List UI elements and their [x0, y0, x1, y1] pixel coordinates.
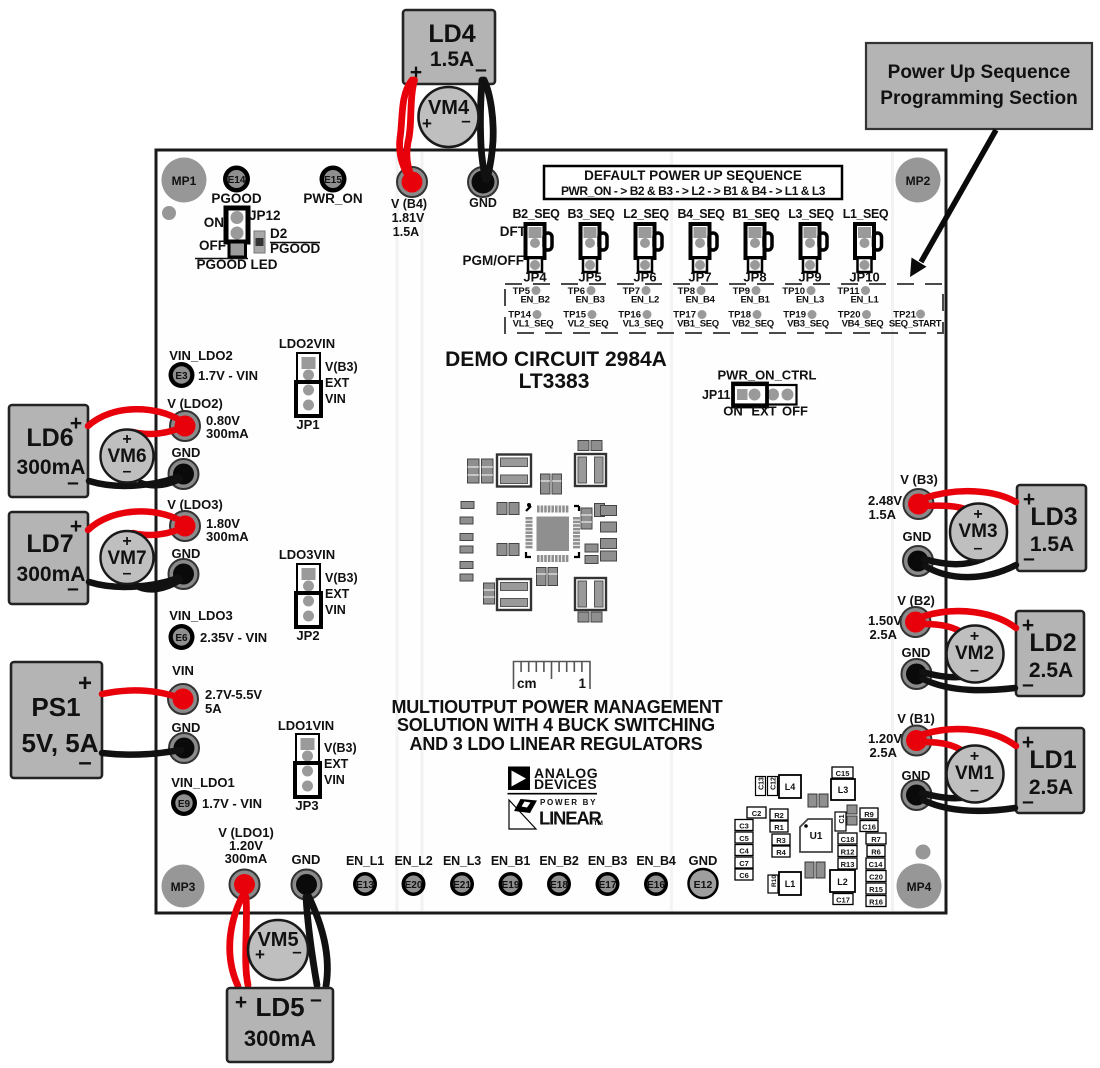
svg-text:JP7: JP7 — [688, 270, 711, 285]
svg-text:SEQ_START: SEQ_START — [889, 319, 942, 330]
svg-text:PS1: PS1 — [31, 692, 80, 722]
svg-text:MP4: MP4 — [907, 880, 932, 894]
svg-text:V(B3): V(B3) — [325, 360, 358, 374]
svg-text:GND: GND — [902, 645, 931, 660]
svg-text:JP3: JP3 — [295, 798, 318, 813]
svg-text:–: – — [461, 111, 470, 130]
svg-text:C13: C13 — [759, 777, 766, 790]
svg-text:DEMO CIRCUIT 2984A: DEMO CIRCUIT 2984A — [445, 348, 667, 371]
svg-text:1.5A: 1.5A — [430, 48, 474, 71]
svg-text:–: – — [78, 749, 91, 776]
svg-text:LINEAR: LINEAR — [539, 808, 602, 829]
svg-text:VM2: VM2 — [955, 643, 994, 664]
svg-text:JP12: JP12 — [249, 208, 281, 223]
svg-text:1.50V: 1.50V — [868, 613, 902, 628]
svg-text:OFF: OFF — [199, 238, 226, 253]
svg-text:VL2_SEQ: VL2_SEQ — [568, 319, 609, 330]
svg-text:1.5A: 1.5A — [869, 507, 897, 522]
svg-text:C2: C2 — [752, 809, 762, 818]
svg-text:+: + — [70, 412, 82, 435]
svg-text:–: – — [1022, 790, 1034, 813]
svg-text:GND: GND — [172, 445, 201, 460]
svg-text:R12: R12 — [841, 848, 855, 857]
svg-text:E3: E3 — [175, 371, 188, 382]
svg-text:Power Up Sequence: Power Up Sequence — [888, 62, 1071, 83]
svg-text:C3: C3 — [739, 822, 749, 831]
svg-text:R9: R9 — [864, 810, 874, 819]
svg-text:V(B3): V(B3) — [324, 741, 357, 755]
svg-text:VIN: VIN — [325, 392, 346, 406]
svg-text:R4: R4 — [776, 848, 786, 857]
svg-text:–: – — [292, 942, 301, 961]
svg-text:EN_B1: EN_B1 — [740, 295, 770, 306]
svg-text:L1: L1 — [785, 879, 796, 889]
svg-text:R6: R6 — [871, 848, 881, 857]
svg-text:EN_L1: EN_L1 — [850, 295, 879, 306]
svg-text:E21: E21 — [453, 880, 471, 891]
svg-text:LD3: LD3 — [1030, 503, 1077, 531]
svg-text:–: – — [970, 782, 979, 799]
svg-text:Programming Section: Programming Section — [880, 88, 1077, 109]
svg-text:L3_SEQ: L3_SEQ — [788, 207, 834, 221]
svg-text:E19: E19 — [502, 880, 520, 891]
svg-text:VM1: VM1 — [955, 763, 995, 784]
svg-text:JP9: JP9 — [798, 270, 821, 285]
svg-text:PWR_ON_CTRL: PWR_ON_CTRL — [718, 368, 817, 383]
svg-text:DFT: DFT — [500, 224, 527, 239]
svg-text:VB1_SEQ: VB1_SEQ — [677, 319, 719, 330]
svg-text:R7: R7 — [871, 835, 881, 844]
svg-text:EN_L1: EN_L1 — [346, 854, 384, 868]
svg-text:300mA: 300mA — [206, 426, 249, 441]
svg-text:R1: R1 — [774, 823, 784, 832]
svg-text:PWR_ON - > B2 & B3 - > L2 - >: PWR_ON - > B2 & B3 - > L2 - > B1 & B4 - … — [561, 184, 826, 198]
svg-text:E13: E13 — [356, 880, 374, 891]
svg-text:GND: GND — [469, 196, 497, 210]
svg-text:VIN_LDO2: VIN_LDO2 — [169, 348, 233, 363]
svg-text:1.7V - VIN: 1.7V - VIN — [198, 368, 258, 383]
svg-text:V(B3): V(B3) — [325, 571, 358, 585]
svg-text:V (B1): V (B1) — [897, 711, 935, 726]
svg-text:2.5A: 2.5A — [870, 627, 898, 642]
svg-text:R10: R10 — [771, 875, 778, 887]
svg-text:LDO2VIN: LDO2VIN — [279, 336, 335, 351]
svg-text:JP8: JP8 — [743, 270, 766, 285]
svg-text:–: – — [310, 988, 322, 1011]
svg-text:B3_SEQ: B3_SEQ — [568, 207, 616, 221]
svg-text:B1_SEQ: B1_SEQ — [733, 207, 781, 221]
svg-text:E14: E14 — [228, 175, 246, 186]
svg-text:L3: L3 — [838, 785, 849, 795]
svg-text:MP3: MP3 — [171, 880, 196, 894]
svg-text:B4_SEQ: B4_SEQ — [678, 207, 726, 221]
svg-text:GND: GND — [689, 853, 718, 868]
svg-text:OFF: OFF — [782, 404, 808, 419]
svg-text:GND: GND — [292, 852, 321, 867]
svg-text:EN_B2: EN_B2 — [539, 854, 579, 868]
svg-text:LD6: LD6 — [26, 424, 73, 452]
svg-text:C16: C16 — [862, 823, 876, 832]
svg-text:VIN: VIN — [325, 603, 346, 617]
svg-text:C7: C7 — [739, 859, 749, 868]
svg-text:SOLUTION WITH 4 BUCK SWITCHING: SOLUTION WITH 4 BUCK SWITCHING — [397, 715, 715, 735]
svg-text:C18: C18 — [841, 835, 855, 844]
svg-text:R16: R16 — [869, 898, 883, 907]
svg-text:1.81V: 1.81V — [392, 211, 425, 225]
svg-text:2.5A: 2.5A — [1029, 776, 1073, 799]
svg-text:V (B2): V (B2) — [897, 593, 935, 608]
svg-text:DEFAULT POWER UP SEQUENCE: DEFAULT POWER UP SEQUENCE — [584, 168, 802, 183]
svg-text:R13: R13 — [841, 860, 855, 869]
svg-text:VL3_SEQ: VL3_SEQ — [623, 319, 664, 330]
svg-text:B2_SEQ: B2_SEQ — [513, 207, 561, 221]
svg-text:R15: R15 — [869, 885, 883, 894]
svg-text:–: – — [123, 463, 132, 480]
svg-text:EN_B4: EN_B4 — [636, 854, 676, 868]
svg-text:EXT: EXT — [324, 757, 349, 771]
svg-text:–: – — [67, 471, 79, 494]
svg-text:L4: L4 — [785, 782, 796, 792]
svg-text:JP1: JP1 — [296, 417, 319, 432]
svg-text:V (LDO2): V (LDO2) — [167, 396, 223, 411]
svg-text:VIN_LDO3: VIN_LDO3 — [169, 608, 233, 623]
svg-text:PGOOD: PGOOD — [211, 191, 262, 206]
svg-text:2.5A: 2.5A — [870, 745, 898, 760]
svg-text:PWR_ON: PWR_ON — [303, 191, 362, 206]
svg-text:LD4: LD4 — [428, 20, 475, 48]
svg-text:R2: R2 — [774, 811, 784, 820]
svg-text:E12: E12 — [694, 879, 713, 891]
svg-text:EXT: EXT — [325, 587, 350, 601]
svg-text:LDO3VIN: LDO3VIN — [279, 547, 335, 562]
svg-text:DEVICES: DEVICES — [534, 776, 597, 792]
svg-text:L1_SEQ: L1_SEQ — [843, 207, 889, 221]
svg-text:MP2: MP2 — [906, 174, 931, 188]
svg-text:PGM/OFF: PGM/OFF — [463, 253, 525, 268]
svg-text:VL1_SEQ: VL1_SEQ — [513, 319, 554, 330]
svg-text:1: 1 — [578, 676, 586, 691]
svg-text:E20: E20 — [405, 880, 423, 891]
svg-text:VIN_LDO1: VIN_LDO1 — [171, 775, 235, 790]
svg-text:L2: L2 — [837, 877, 848, 887]
svg-text:1.7V - VIN: 1.7V - VIN — [202, 796, 262, 811]
svg-text:E6: E6 — [175, 633, 188, 644]
svg-text:TM: TM — [594, 820, 603, 827]
svg-text:2.7V-5.5V: 2.7V-5.5V — [205, 687, 262, 702]
svg-text:C20: C20 — [869, 873, 883, 882]
svg-text:C6: C6 — [739, 871, 749, 880]
svg-text:U1: U1 — [810, 831, 823, 842]
svg-text:–: – — [974, 540, 983, 557]
svg-text:300mA: 300mA — [244, 1026, 316, 1051]
svg-text:EN_B1: EN_B1 — [491, 854, 531, 868]
svg-text:LDO1VIN: LDO1VIN — [278, 718, 334, 733]
svg-text:LT3383: LT3383 — [519, 370, 590, 393]
svg-text:E18: E18 — [550, 880, 568, 891]
svg-text:V (B4): V (B4) — [391, 197, 427, 211]
svg-text:–: – — [970, 662, 979, 679]
svg-text:EN_B4: EN_B4 — [685, 295, 715, 306]
svg-text:C14: C14 — [869, 860, 884, 869]
svg-text:EXT: EXT — [751, 404, 776, 419]
svg-text:C4: C4 — [739, 847, 749, 856]
svg-text:JP6: JP6 — [633, 270, 656, 285]
svg-text:GND: GND — [903, 529, 932, 544]
svg-text:+: + — [422, 114, 432, 133]
svg-text:EXT: EXT — [325, 376, 350, 390]
svg-text:JP5: JP5 — [578, 270, 601, 285]
svg-text:LD5: LD5 — [255, 992, 304, 1022]
svg-text:cm: cm — [517, 676, 537, 691]
svg-text:2.48V: 2.48V — [868, 493, 902, 508]
svg-text:ON: ON — [723, 404, 743, 419]
svg-text:C15: C15 — [836, 769, 850, 778]
svg-text:C17: C17 — [836, 896, 850, 905]
svg-text:POWER BY: POWER BY — [540, 798, 597, 807]
svg-text:V (B3): V (B3) — [900, 472, 938, 487]
svg-text:VB3_SEQ: VB3_SEQ — [787, 319, 829, 330]
svg-text:E17: E17 — [599, 880, 617, 891]
svg-text:1.5A: 1.5A — [1030, 533, 1074, 556]
svg-text:EN_L2: EN_L2 — [631, 295, 659, 306]
svg-text:JP10: JP10 — [849, 270, 879, 285]
svg-text:300mA: 300mA — [206, 529, 249, 544]
svg-text:VB2_SEQ: VB2_SEQ — [732, 319, 774, 330]
svg-text:EN_L2: EN_L2 — [395, 854, 433, 868]
svg-text:VM3: VM3 — [958, 521, 997, 542]
svg-text:–: – — [123, 565, 132, 582]
svg-text:LD7: LD7 — [26, 530, 73, 558]
svg-text:+: + — [235, 991, 247, 1014]
svg-text:V (LDO3): V (LDO3) — [167, 497, 223, 512]
svg-text:VB4_SEQ: VB4_SEQ — [842, 319, 884, 330]
svg-text:EN_L3: EN_L3 — [796, 295, 824, 306]
svg-text:E15: E15 — [324, 175, 342, 186]
svg-text:MULTIOUTPUT POWER MANAGEMENT: MULTIOUTPUT POWER MANAGEMENT — [391, 697, 722, 717]
svg-text:JP11: JP11 — [702, 388, 731, 402]
svg-text:EN_B3: EN_B3 — [575, 295, 604, 306]
svg-text:E9: E9 — [178, 799, 191, 810]
svg-text:AND 3 LDO LINEAR REGULATORS: AND 3 LDO LINEAR REGULATORS — [410, 734, 703, 754]
svg-text:EN_B2: EN_B2 — [520, 295, 549, 306]
svg-text:C5: C5 — [739, 834, 749, 843]
svg-text:LD2: LD2 — [1029, 629, 1076, 657]
svg-text:1.20V: 1.20V — [868, 731, 902, 746]
svg-text:L2_SEQ: L2_SEQ — [623, 207, 669, 221]
svg-text:C12: C12 — [771, 777, 778, 790]
svg-text:EN_L3: EN_L3 — [443, 854, 481, 868]
svg-text:300mA: 300mA — [225, 851, 268, 866]
svg-text:–: – — [67, 577, 79, 600]
svg-text:R3: R3 — [776, 836, 786, 845]
svg-text:D2: D2 — [270, 226, 287, 241]
svg-text:LD1: LD1 — [1029, 746, 1076, 774]
svg-text:ON: ON — [204, 215, 224, 230]
svg-text:2.35V - VIN: 2.35V - VIN — [200, 630, 267, 645]
svg-text:+: + — [255, 945, 265, 964]
svg-text:VIN: VIN — [172, 663, 194, 678]
svg-text:+: + — [70, 515, 82, 538]
svg-text:C1: C1 — [839, 814, 846, 823]
svg-text:EN_B3: EN_B3 — [588, 854, 628, 868]
svg-text:1.5A: 1.5A — [393, 225, 419, 239]
svg-text:5A: 5A — [205, 701, 222, 716]
svg-text:MP1: MP1 — [172, 174, 197, 188]
svg-text:JP4: JP4 — [523, 270, 547, 285]
svg-text:E16: E16 — [647, 880, 665, 891]
svg-text:VIN: VIN — [324, 773, 345, 787]
svg-text:–: – — [1023, 547, 1035, 570]
svg-text:JP2: JP2 — [296, 628, 319, 643]
svg-text:2.5A: 2.5A — [1029, 659, 1073, 682]
svg-text:–: – — [1022, 673, 1034, 696]
